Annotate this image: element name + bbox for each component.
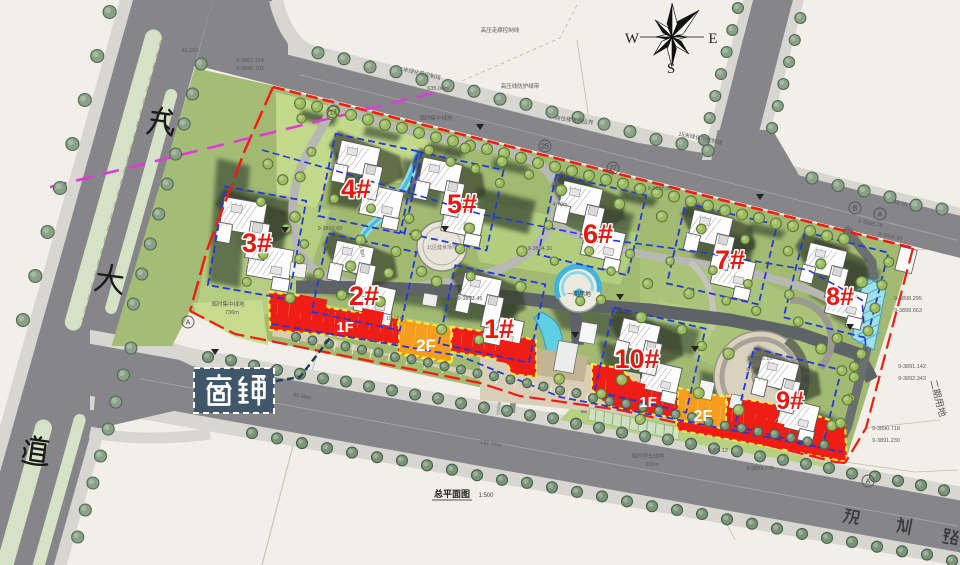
svg-text:W: W [625,31,640,47]
svg-text:1#: 1# [484,314,514,344]
svg-text:9-3893.45: 9-3893.45 [458,296,483,302]
svg-text:临时停车绿地: 临时停车绿地 [631,452,665,460]
svg-text:2F: 2F [694,408,713,425]
svg-text:9-3896.10: 9-3896.10 [748,356,773,362]
svg-text:临时集中绿地: 临时集中绿地 [419,114,453,122]
svg-text:临时集中绿地: 临时集中绿地 [211,300,245,308]
svg-text:高压走廊控制线: 高压走廊控制线 [481,26,520,34]
svg-text:15.06m: 15.06m [386,316,405,322]
svg-text:1F: 1F [639,394,657,411]
svg-text:635.00m: 635.00m [427,86,449,92]
svg-text:46.100: 46.100 [182,48,199,54]
svg-text:A: A [866,478,871,485]
svg-text:9-3846.102: 9-3846.102 [236,66,264,72]
svg-text:E: E [708,31,717,47]
svg-text:高压线防护绿带: 高压线防护绿带 [501,82,540,90]
svg-text:4#: 4# [341,174,371,204]
svg-text:2#: 2# [349,281,379,311]
svg-text:7#: 7# [715,245,745,275]
svg-text:9-3894.30: 9-3894.30 [528,246,553,252]
svg-text:9-3890.718: 9-3890.718 [872,426,900,432]
svg-text:9-3892.343: 9-3892.343 [898,376,926,382]
svg-text:8#: 8# [826,283,854,311]
svg-text:206m: 206m [645,462,659,468]
svg-text:9-3891.230: 9-3891.230 [872,438,900,444]
svg-text:27: 27 [609,165,617,172]
svg-text:25: 25 [541,143,549,150]
svg-text:9-3895.50: 9-3895.50 [648,186,673,192]
svg-text:9-3891.142: 9-3891.142 [898,364,926,370]
svg-text:6#: 6# [583,219,613,249]
svg-text:1F: 1F [336,319,354,336]
svg-text:1:500: 1:500 [478,493,494,499]
svg-text:北区健身场地: 北区健身场地 [427,244,457,251]
svg-text:17: 17 [329,109,337,116]
svg-text:A: A [186,319,191,326]
svg-text:9-3892.60: 9-3892.60 [318,226,343,232]
svg-text:9-3867.194: 9-3867.194 [236,58,264,64]
svg-text:736m: 736m [225,310,239,316]
svg-text:B: B [853,205,858,212]
svg-text:5#: 5# [447,189,477,219]
svg-text:10#: 10# [614,344,659,374]
svg-text:3#: 3# [242,228,272,258]
svg-text:S: S [667,61,675,77]
svg-text:2F: 2F [416,336,436,355]
svg-text:4.8,5.12: 4.8,5.12 [708,448,728,454]
svg-text:A: A [804,376,809,383]
svg-text:总平面图: 总平面图 [434,488,470,499]
svg-text:9#: 9# [776,387,804,415]
svg-text:9-3899.663: 9-3899.663 [894,308,922,314]
svg-text:9-3898.295: 9-3898.295 [894,296,922,302]
svg-text:9-3889.775: 9-3889.775 [746,466,774,472]
svg-text:4.70m: 4.70m [552,202,568,208]
svg-text:A: A [878,211,883,218]
